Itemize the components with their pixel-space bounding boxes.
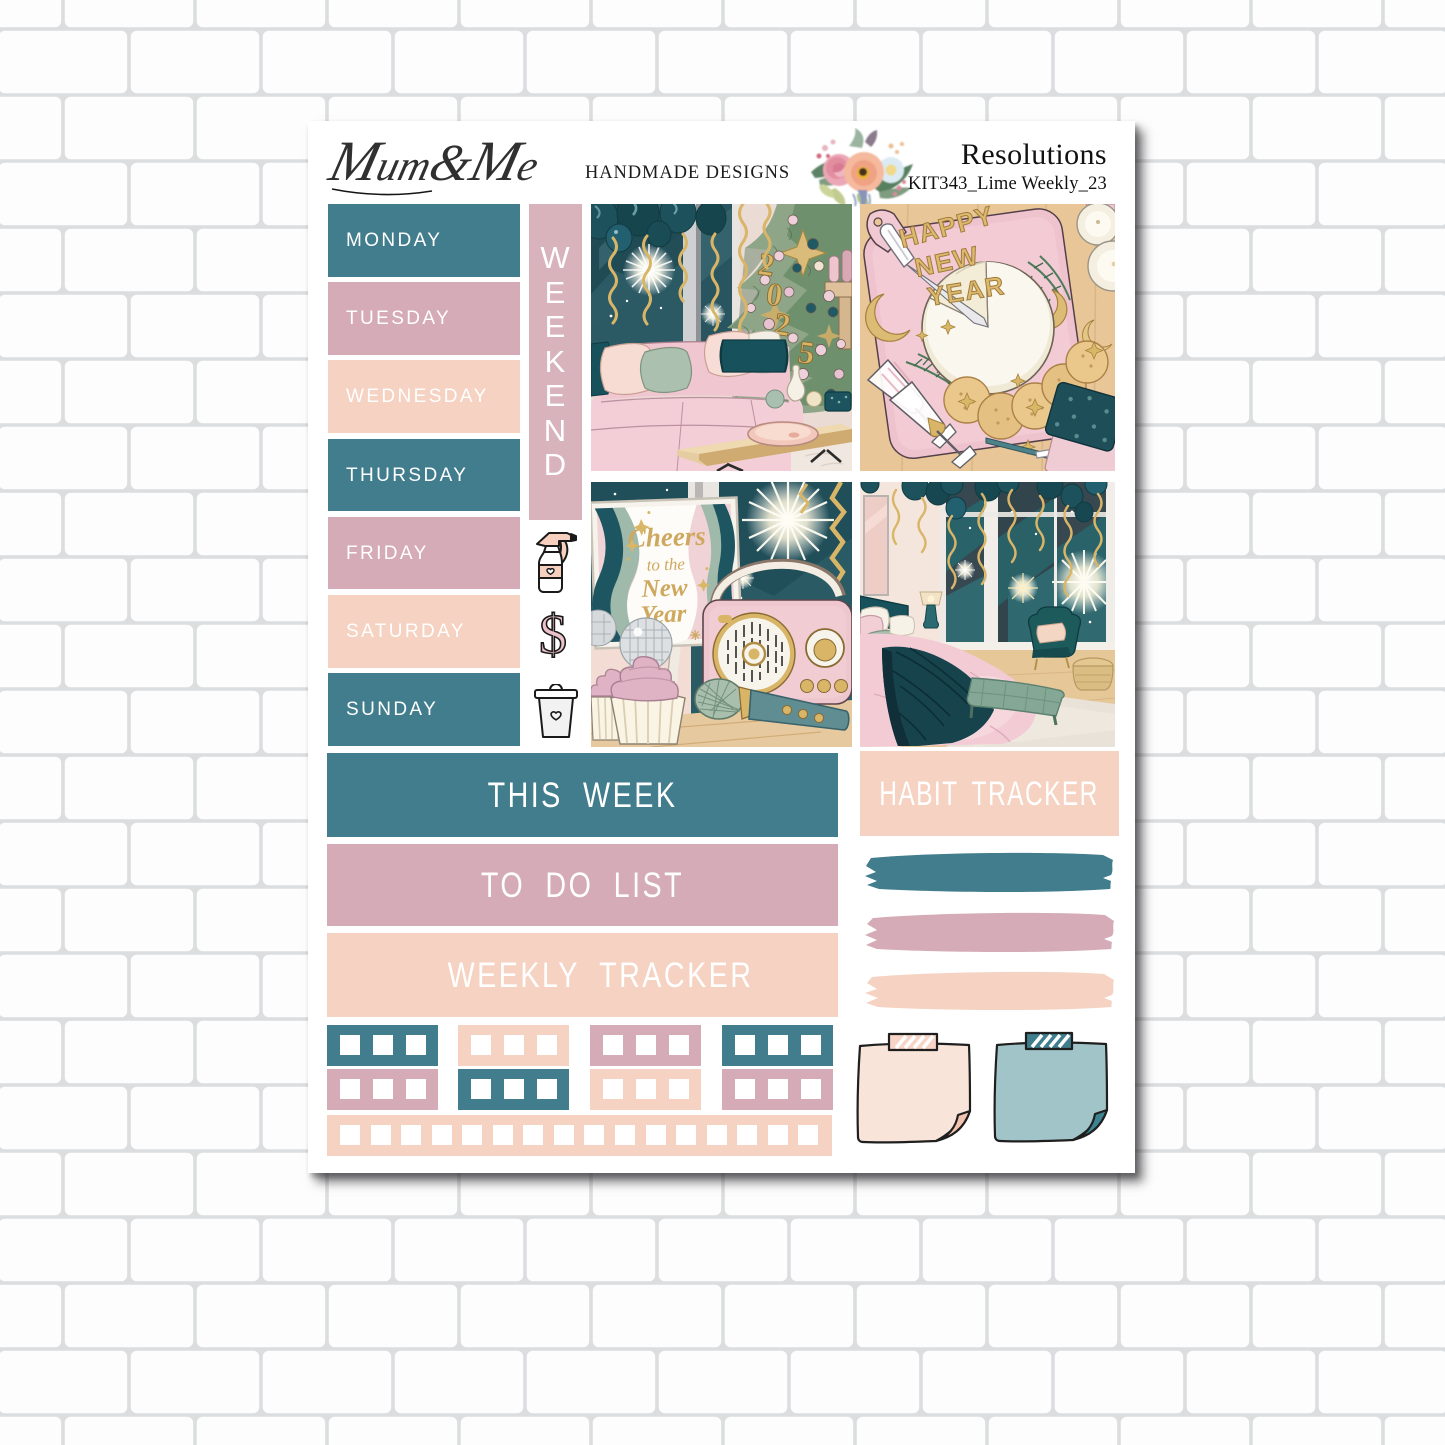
svg-text:New: New [640, 574, 688, 603]
svg-text:$: $ [539, 606, 567, 666]
svg-text:to the: to the [646, 554, 685, 574]
svg-text:Mum&Me: Mum&Me [323, 129, 547, 193]
